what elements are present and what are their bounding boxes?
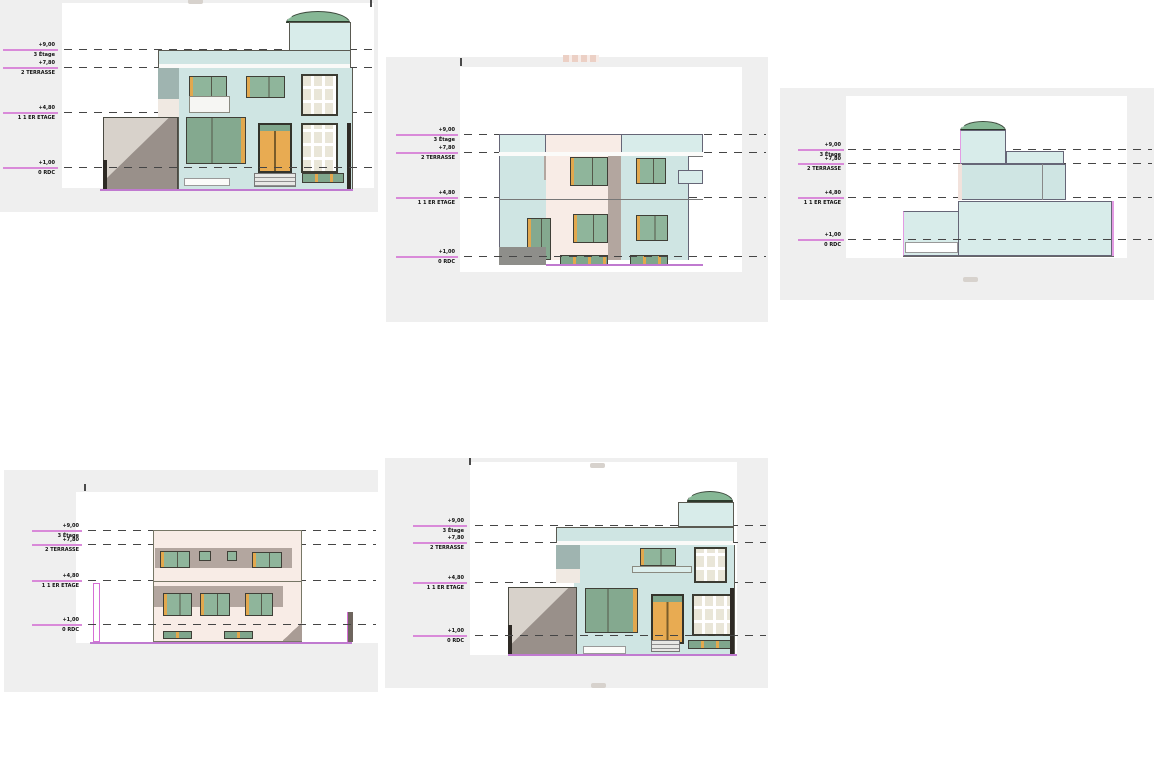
window [163, 593, 192, 616]
window [246, 76, 285, 98]
shadow-panel [556, 545, 580, 569]
basement-window-strip [688, 640, 732, 649]
building-elevation [0, 0, 378, 212]
curtain-wall-window [301, 123, 338, 173]
small-window [199, 551, 211, 561]
boundary-pole [93, 583, 100, 642]
corner-shadow [283, 623, 302, 641]
viewport-rear-elevation[interactable]: +9,003 Étage+7,802 TERRASSE+4,801 1 ER E… [386, 57, 768, 322]
entry-steps [651, 640, 680, 652]
curtain-wall-window [694, 547, 727, 583]
section-cut-edge [1112, 201, 1114, 256]
tower-wall [960, 130, 1006, 164]
entry-door [651, 594, 684, 644]
window [200, 593, 230, 616]
small-window [227, 551, 237, 561]
building-elevation [385, 458, 768, 688]
corner-shadow [730, 588, 734, 655]
first-floor-mass [958, 201, 1112, 256]
balcony-slab [678, 170, 703, 184]
boundary-pole [347, 612, 353, 642]
level-datum-line [32, 624, 82, 626]
garage-post [508, 625, 512, 655]
garage-wall [103, 117, 178, 190]
drawing-canvas: +9,003 Étage+7,802 TERRASSE+4,801 1 ER E… [0, 0, 1154, 768]
level-datum-line [3, 167, 58, 169]
entry-steps [254, 173, 296, 187]
level-datum-line [396, 256, 458, 258]
level-elevation-value: +1,00 [798, 233, 841, 238]
tower-wall [289, 22, 351, 51]
viewport-side-elevation[interactable]: +9,003 Étage+7,802 TERRASSE+4,801 1 ER E… [4, 470, 378, 692]
level-dashed-line [848, 239, 1152, 240]
corner-shadow [347, 123, 351, 190]
window [640, 548, 676, 566]
ground-line [90, 642, 352, 644]
dome-roof [687, 491, 733, 502]
level-elevation-value: +1,00 [396, 250, 455, 255]
level-dashed-line [88, 624, 376, 625]
cream-panel [556, 569, 580, 583]
floor-slab-line [153, 581, 302, 582]
living-room-window [585, 588, 638, 633]
level-elevation-value: +1,00 [32, 618, 79, 623]
level-dashed-line [464, 256, 766, 257]
living-room-window [186, 117, 246, 164]
level-name: 0 RDC [3, 171, 55, 176]
ground-line [546, 264, 703, 266]
second-floor-mass [958, 164, 1066, 200]
garage-wall [508, 587, 577, 655]
curtain-wall-window [692, 594, 734, 636]
curtain-wall-window [301, 74, 338, 116]
building-elevation [4, 470, 378, 692]
viewport-side-section[interactable]: +9,003 Étage+7,802 TERRASSE+4,801 1 ER E… [780, 88, 1154, 300]
entry-door [258, 123, 292, 173]
window [636, 158, 666, 184]
basement-window-strip [302, 173, 344, 183]
ground-line [100, 189, 353, 191]
level-elevation-value: +1,00 [413, 629, 464, 634]
level-datum-line [798, 239, 844, 241]
ground-floor-window [224, 631, 253, 639]
opening [905, 242, 958, 253]
window [245, 593, 273, 616]
garage-door [583, 646, 626, 654]
level-name: 0 RDC [798, 243, 841, 248]
balcony-parapet [189, 96, 230, 113]
ground-line [508, 654, 737, 656]
window [636, 215, 668, 241]
balcony-slab [632, 566, 692, 573]
level-name: 0 RDC [32, 628, 79, 633]
cream-panel [158, 99, 179, 117]
ground-floor-window [163, 631, 192, 639]
level-name: 0 RDC [413, 639, 464, 644]
shadow-strip [608, 200, 621, 260]
tower-wall [678, 502, 734, 527]
building-elevation [386, 57, 768, 322]
level-dashed-line [64, 167, 376, 168]
viewport-front-elevation-2[interactable]: +9,003 Étage+7,802 TERRASSE+4,801 1 ER E… [385, 458, 768, 688]
level-datum-line [413, 635, 467, 637]
level-elevation-value: +1,00 [3, 161, 55, 166]
garage-post [103, 160, 107, 190]
window [573, 214, 608, 243]
wall-divider-line [1042, 164, 1043, 200]
section-cut-strip [958, 164, 962, 200]
window [189, 76, 227, 98]
shadow-panel [158, 68, 179, 99]
second-floor-wall [499, 156, 547, 199]
window [160, 551, 190, 568]
window [252, 552, 282, 568]
ground-line [903, 256, 1114, 257]
shadow-strip [608, 156, 621, 199]
level-name: 0 RDC [396, 260, 455, 265]
viewport-front-elevation[interactable]: +9,003 Étage+7,802 TERRASSE+4,801 1 ER E… [0, 0, 378, 212]
garage-door [184, 178, 230, 186]
roof-band [1006, 151, 1064, 164]
window [570, 157, 608, 186]
level-dashed-line [475, 635, 766, 636]
building-section [780, 88, 1154, 300]
